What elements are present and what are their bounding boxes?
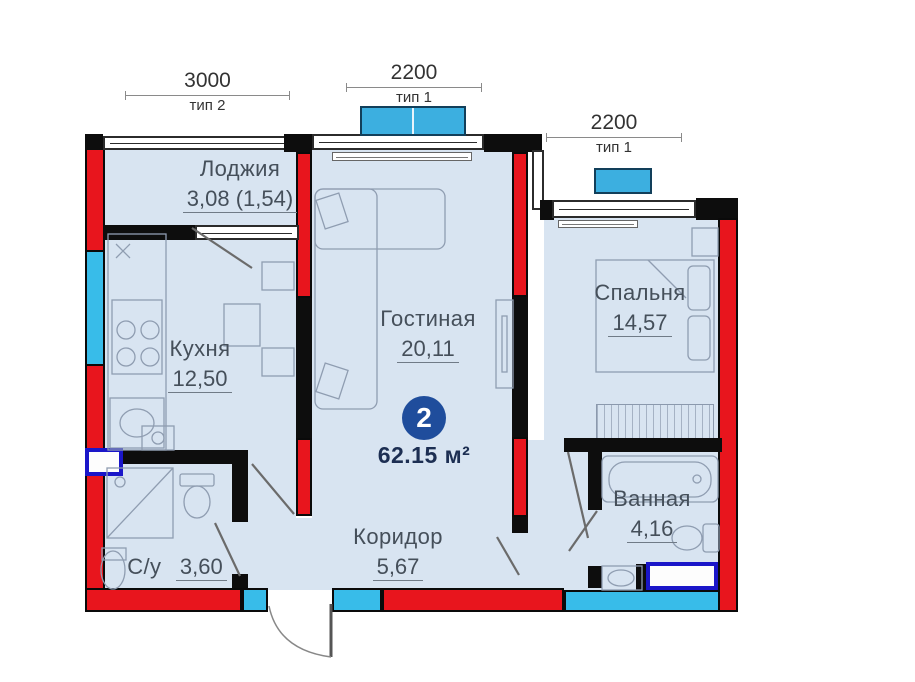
balcony-window-unit-icon bbox=[360, 106, 466, 136]
room-name: Коридор bbox=[318, 524, 478, 549]
bedroom-door-icon bbox=[568, 452, 588, 538]
room-label-corridor: Коридор 5,67 bbox=[318, 524, 478, 579]
room-name: С/у bbox=[127, 554, 161, 579]
loggia-door-icon bbox=[192, 228, 252, 268]
dimension-value: 3000 bbox=[125, 70, 290, 92]
room-name: Спальня bbox=[560, 280, 720, 305]
dimension-value: 2200 bbox=[346, 62, 482, 84]
room-name: Гостиная bbox=[348, 306, 508, 331]
room-label-living: Гостиная 20,11 bbox=[348, 306, 508, 361]
living-door-icon bbox=[497, 537, 519, 575]
room-area-value: 4,16 bbox=[627, 516, 678, 543]
room-area-value: 3,08 (1,54) bbox=[183, 186, 297, 213]
sofa-icon bbox=[315, 189, 445, 409]
room-label-bedroom: Спальня 14,57 bbox=[560, 280, 720, 335]
dimension-type: тип 2 bbox=[125, 98, 290, 114]
room-name: Кухня bbox=[120, 336, 280, 361]
floor-plan: 3000 тип 2 2200 тип 1 2200 тип 1 Лоджия … bbox=[0, 0, 915, 682]
room-area-value: 14,57 bbox=[608, 310, 671, 337]
room-area-value: 5,67 bbox=[373, 554, 424, 581]
dimension-3000: 3000 тип 2 bbox=[125, 70, 290, 114]
toilet-icon bbox=[180, 474, 214, 518]
bathroom-sink-icon bbox=[602, 566, 642, 590]
balcony-window-unit-icon bbox=[594, 168, 652, 194]
room-name: Ванная bbox=[587, 486, 717, 511]
room-label-kitchen: Кухня 12,50 bbox=[120, 336, 280, 391]
room-area-value: 12,50 bbox=[168, 366, 231, 393]
room-name: Лоджия bbox=[158, 156, 322, 181]
kitchen-sink-icon bbox=[110, 398, 164, 448]
room-label-bathroom: Ванная 4,16 bbox=[587, 486, 717, 541]
dimension-2200-bedroom: 2200 тип 1 bbox=[546, 112, 682, 156]
nightstand-icon bbox=[692, 228, 718, 256]
dimension-type: тип 1 bbox=[346, 90, 482, 106]
room-area-value: 20,11 bbox=[397, 336, 458, 363]
shower-icon bbox=[107, 468, 173, 538]
dimension-value: 2200 bbox=[546, 112, 682, 134]
total-area-label: 62.15 м² bbox=[354, 442, 494, 469]
entry-door-icon bbox=[269, 604, 331, 657]
kitchen-door-icon bbox=[252, 464, 294, 514]
rooms-count-badge: 2 bbox=[402, 396, 446, 440]
dimension-type: тип 1 bbox=[546, 140, 682, 156]
dimension-2200-living: 2200 тип 1 bbox=[346, 62, 482, 106]
room-label-wc: С/у 3,60 bbox=[112, 554, 242, 579]
room-area-value: 3,60 bbox=[176, 554, 227, 581]
room-label-loggia: Лоджия 3,08 (1,54) bbox=[158, 156, 322, 211]
water-heater-icon bbox=[142, 426, 174, 450]
